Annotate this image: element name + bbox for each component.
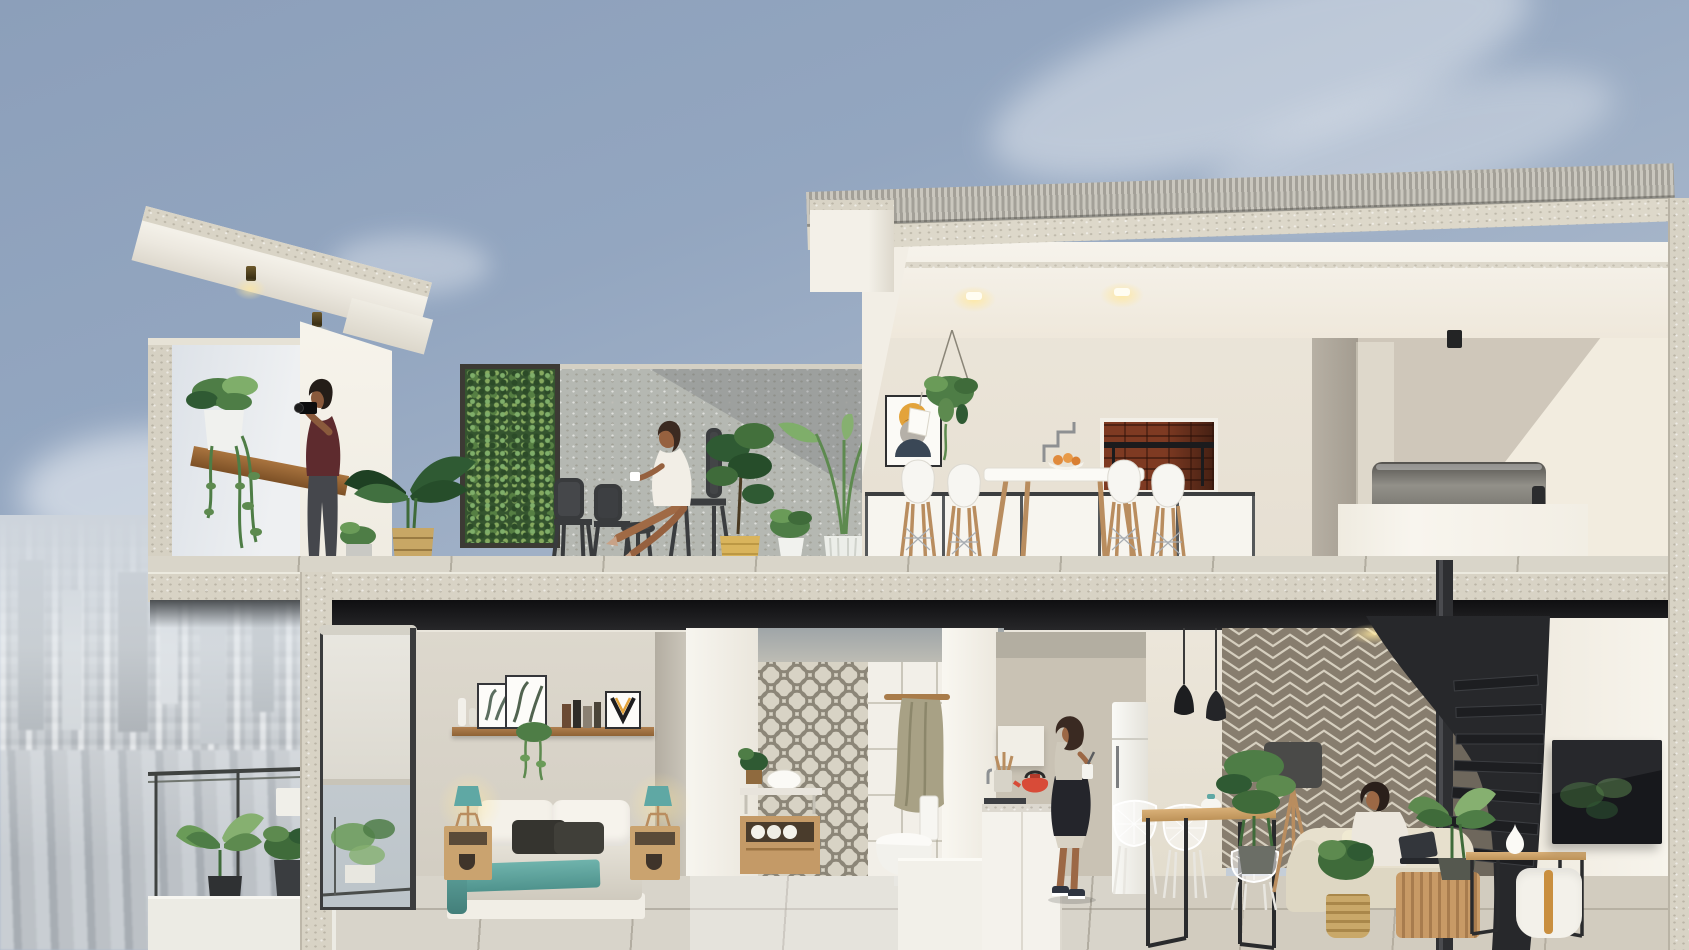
cabinet-door-line: [1021, 812, 1023, 950]
philodendron-leaves: [176, 813, 264, 876]
fiddle-leaf-fig: [706, 423, 774, 574]
pothos-vines: [208, 436, 256, 548]
white-dress: [652, 448, 692, 506]
drawer-face-line: [746, 848, 814, 851]
tv-screen: [1552, 740, 1662, 844]
parapet-outer-cut: [148, 345, 172, 576]
door-mullion: [410, 628, 416, 910]
kitchen-soffit: [996, 632, 1146, 660]
camera-lens-icon: [295, 404, 304, 413]
black-apron: [1051, 776, 1091, 836]
nightstand-handle-notch: [459, 854, 475, 870]
roller-blind: [323, 631, 413, 781]
letter-v-artwork: [606, 692, 640, 728]
hot-tub-rim: [1376, 464, 1542, 470]
stems: [408, 498, 416, 528]
blind-cassette: [319, 625, 417, 635]
botanical-print: [506, 676, 546, 728]
white-jug: [1082, 764, 1093, 779]
counter: [740, 788, 822, 795]
vanity: [736, 744, 826, 884]
pothos-plant: [178, 366, 288, 556]
ceiling-concrete-lip: [862, 262, 1668, 268]
pothos-foliage: [186, 376, 258, 411]
banana-leaves: [344, 456, 476, 503]
fruit-bowl: [1044, 452, 1088, 470]
legs: [1060, 844, 1076, 888]
console-table-top: [1466, 852, 1586, 860]
recessed-light-core: [1114, 288, 1130, 296]
leather-strap: [1544, 870, 1553, 934]
pothos-pot: [204, 410, 244, 450]
wall-cap-line: [554, 364, 866, 369]
pants: [308, 474, 338, 557]
nightstand-shelf-slot: [449, 832, 487, 845]
charcoal-pillow: [554, 822, 604, 854]
scene-render: [0, 0, 1689, 950]
recessed-light-core: [966, 292, 982, 300]
coffee-cup: [630, 472, 640, 481]
sliding-door: [320, 628, 416, 910]
heel-shoe: [606, 536, 618, 546]
person-cook: [1040, 712, 1112, 908]
freezer-line: [1112, 738, 1148, 740]
sneaker: [1068, 889, 1085, 899]
nightstand: [444, 826, 492, 880]
vanity-plant: [738, 748, 768, 784]
teal-lamp: [636, 784, 680, 830]
tv-reflection: [1552, 740, 1662, 844]
sneaker: [1052, 886, 1069, 896]
roof-end-pillar: [810, 200, 894, 292]
right-cut-edge: [1668, 198, 1689, 950]
white-vase: [1504, 824, 1526, 854]
ceiling-spot-black: [1447, 330, 1462, 348]
pillar-cap: [810, 200, 894, 210]
downlight-glow: [234, 278, 266, 300]
whisk-icon: [1088, 752, 1094, 764]
bbq-grill: [1104, 442, 1214, 448]
pendant-bell: [1206, 690, 1226, 721]
nightstand-handle-notch: [646, 854, 662, 870]
book-row: [562, 700, 601, 728]
glass-reflection-plants: [323, 777, 413, 907]
blind-bottom-bar: [323, 779, 413, 785]
monstera-leaves: [1408, 788, 1496, 858]
strap-pouf: [1516, 868, 1582, 938]
small-fern: [340, 522, 376, 546]
woven-basket: [1326, 894, 1370, 938]
utensil-crock: [994, 752, 1012, 792]
nightstand: [630, 826, 680, 880]
hanging-trailing-plant: [516, 722, 552, 780]
green-bush: [1314, 832, 1378, 888]
small-vases: [458, 698, 476, 726]
white-pendant-lamp: [902, 392, 936, 444]
vessel-sink: [767, 770, 801, 790]
teal-lamp: [446, 784, 490, 830]
pendant-bell: [1174, 684, 1194, 715]
pendant-lamps: [1168, 628, 1238, 728]
grill-leg: [1201, 448, 1204, 486]
nightstand-shelf-slot: [635, 832, 675, 845]
shelf-items: [428, 636, 663, 786]
balcony-soffit-shadow: [150, 600, 302, 628]
faucet-icon: [988, 770, 992, 784]
